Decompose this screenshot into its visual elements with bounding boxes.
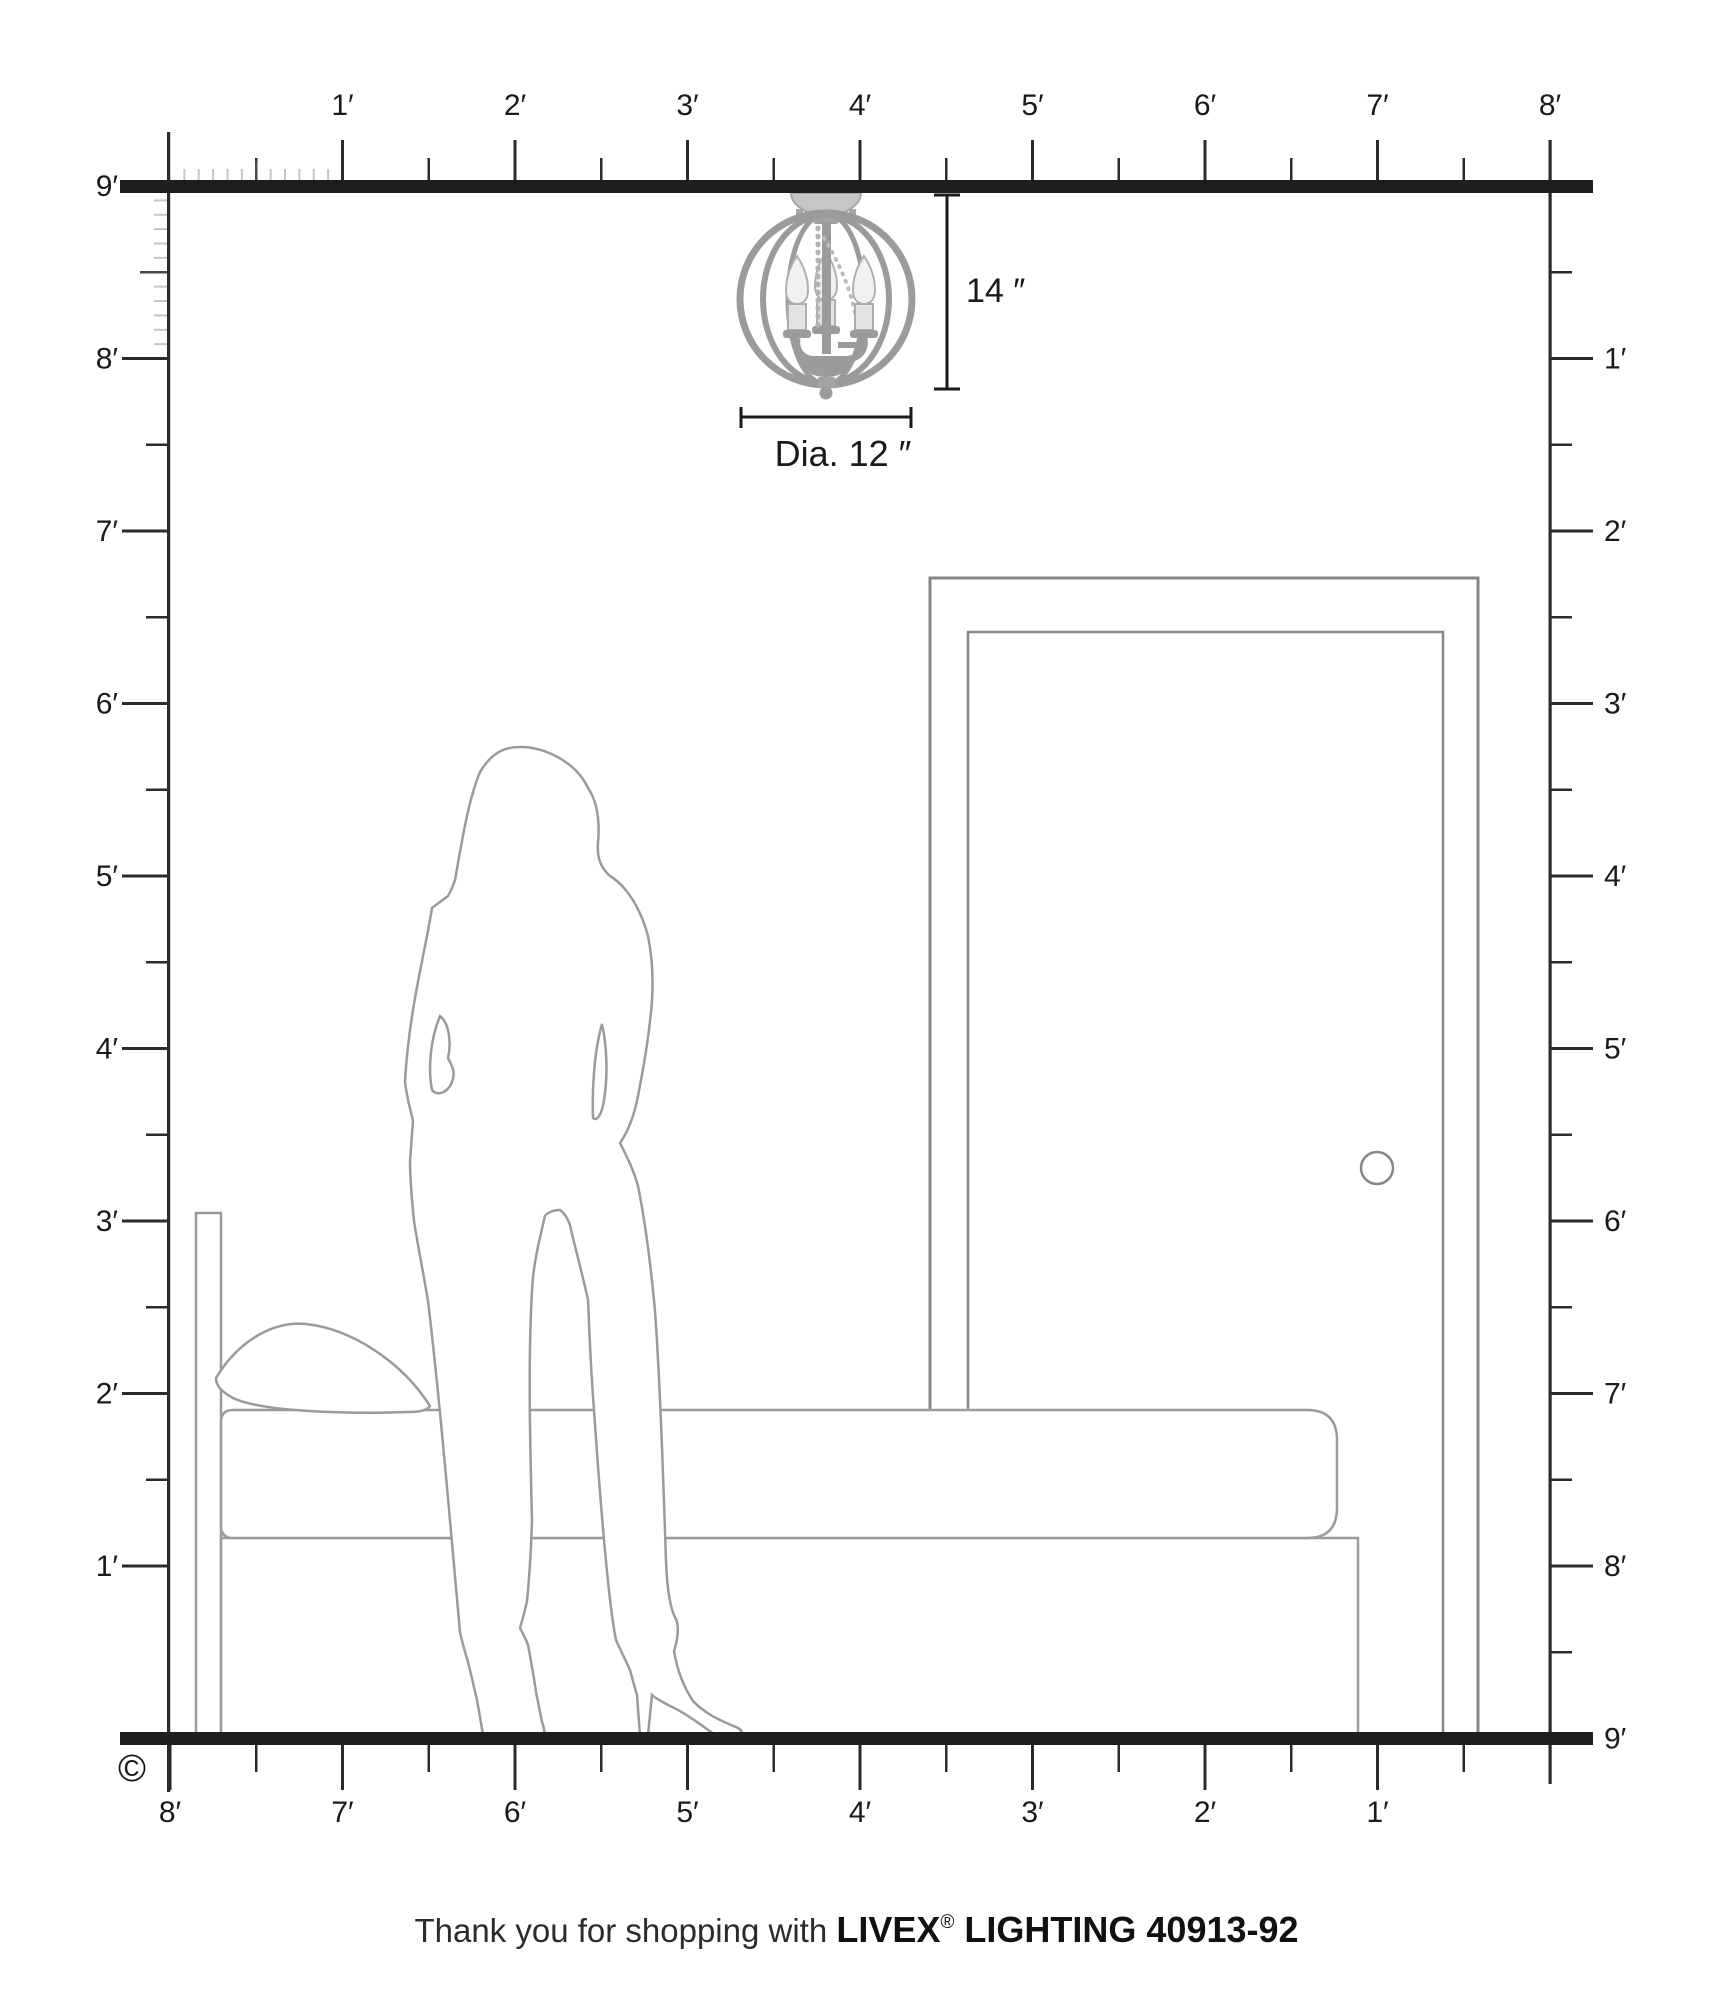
left-ruler-label-2′: 2′ bbox=[96, 1378, 119, 1411]
diameter-dimension-label: Dia. 12 ″ bbox=[775, 433, 912, 474]
left-ruler-label-7′: 7′ bbox=[96, 515, 119, 548]
top-ruler-label-1′: 1′ bbox=[331, 89, 354, 122]
bulb-icon bbox=[853, 256, 875, 304]
left-ruler-label-9′: 9′ bbox=[96, 170, 119, 203]
bottom-ruler-label-2′: 2′ bbox=[1194, 1796, 1217, 1829]
left-ruler-label-8′: 8′ bbox=[96, 343, 119, 376]
right-ruler-label-7′: 7′ bbox=[1604, 1378, 1627, 1411]
diameter-dimension: Dia. 12 ″ bbox=[741, 407, 912, 474]
top-ruler-label-2′: 2′ bbox=[504, 89, 527, 122]
footer-caption: Thank you for shopping with LIVEX® LIGHT… bbox=[0, 1910, 1713, 1950]
right-ruler-label-5′: 5′ bbox=[1604, 1033, 1627, 1066]
right-ruler-label-6′: 6′ bbox=[1604, 1205, 1627, 1238]
footer-brand: LIVEX bbox=[836, 1909, 940, 1950]
fixture-stem bbox=[822, 222, 831, 354]
bottom-ruler-label-3′: 3′ bbox=[1021, 1796, 1044, 1829]
right-ruler-label-1′: 1′ bbox=[1604, 343, 1627, 376]
top-ruler-label-7′: 7′ bbox=[1366, 89, 1389, 122]
right-ruler-line bbox=[1549, 140, 1552, 1784]
fixture-bottom-collar bbox=[818, 377, 835, 388]
right-ruler-label-8′: 8′ bbox=[1604, 1550, 1627, 1583]
candle-bobeche bbox=[850, 330, 878, 338]
bed-headboard bbox=[196, 1213, 221, 1739]
diagram-page: 1′2′3′4′5′6′7′8′9′8′7′6′5′4′3′2′1′1′2′3′… bbox=[0, 0, 1713, 2000]
top-ruler-label-8′: 8′ bbox=[1539, 89, 1562, 122]
top-ruler-label-3′: 3′ bbox=[676, 89, 699, 122]
height-dimension: 14 ″ bbox=[934, 195, 1025, 389]
floor-line bbox=[120, 1732, 1593, 1745]
footer-prefix: Thank you for shopping with bbox=[414, 1912, 836, 1949]
registered-mark-icon: ® bbox=[940, 1912, 954, 1933]
bed-mattress bbox=[221, 1410, 1337, 1538]
bottom-ruler-label-8′: 8′ bbox=[159, 1796, 182, 1829]
scale-diagram: 1′2′3′4′5′6′7′8′9′8′7′6′5′4′3′2′1′1′2′3′… bbox=[0, 0, 1713, 2000]
bottom-ruler-label-7′: 7′ bbox=[331, 1796, 354, 1829]
bottom-ruler-label-1′: 1′ bbox=[1366, 1796, 1389, 1829]
top-ruler-label-6′: 6′ bbox=[1194, 89, 1217, 122]
door-knob bbox=[1361, 1152, 1393, 1184]
top-ruler-label-4′: 4′ bbox=[849, 89, 872, 122]
light-fixture bbox=[740, 193, 912, 400]
candle-bobeche bbox=[783, 330, 811, 338]
left-wall-line bbox=[167, 132, 170, 1792]
bottom-ruler-label-4′: 4′ bbox=[849, 1796, 872, 1829]
ceiling-line bbox=[120, 180, 1593, 193]
copyright-symbol: © bbox=[118, 1748, 146, 1791]
left-ruler-label-3′: 3′ bbox=[96, 1205, 119, 1238]
candle-right bbox=[850, 256, 878, 338]
height-dimension-label: 14 ″ bbox=[966, 272, 1025, 310]
left-ruler-label-4′: 4′ bbox=[96, 1033, 119, 1066]
candle-body bbox=[855, 304, 873, 330]
right-ruler-label-4′: 4′ bbox=[1604, 860, 1627, 893]
right-ruler-label-2′: 2′ bbox=[1604, 515, 1627, 548]
bottom-ruler-label-6′: 6′ bbox=[504, 1796, 527, 1829]
candle-body bbox=[788, 304, 806, 330]
left-ruler-label-6′: 6′ bbox=[96, 688, 119, 721]
bed-pillow bbox=[216, 1324, 430, 1413]
top-ruler-label-5′: 5′ bbox=[1021, 89, 1044, 122]
left-ruler-label-5′: 5′ bbox=[96, 860, 119, 893]
bottom-ruler-label-5′: 5′ bbox=[676, 1796, 699, 1829]
left-ruler-label-1′: 1′ bbox=[96, 1550, 119, 1583]
fixture-finial bbox=[820, 387, 833, 400]
candle-left bbox=[783, 256, 811, 338]
bed-platform bbox=[221, 1538, 1358, 1739]
right-ruler-label-3′: 3′ bbox=[1604, 688, 1627, 721]
footer-product-number: LIGHTING 40913-92 bbox=[954, 1909, 1298, 1950]
right-ruler-label-9′: 9′ bbox=[1604, 1723, 1627, 1756]
